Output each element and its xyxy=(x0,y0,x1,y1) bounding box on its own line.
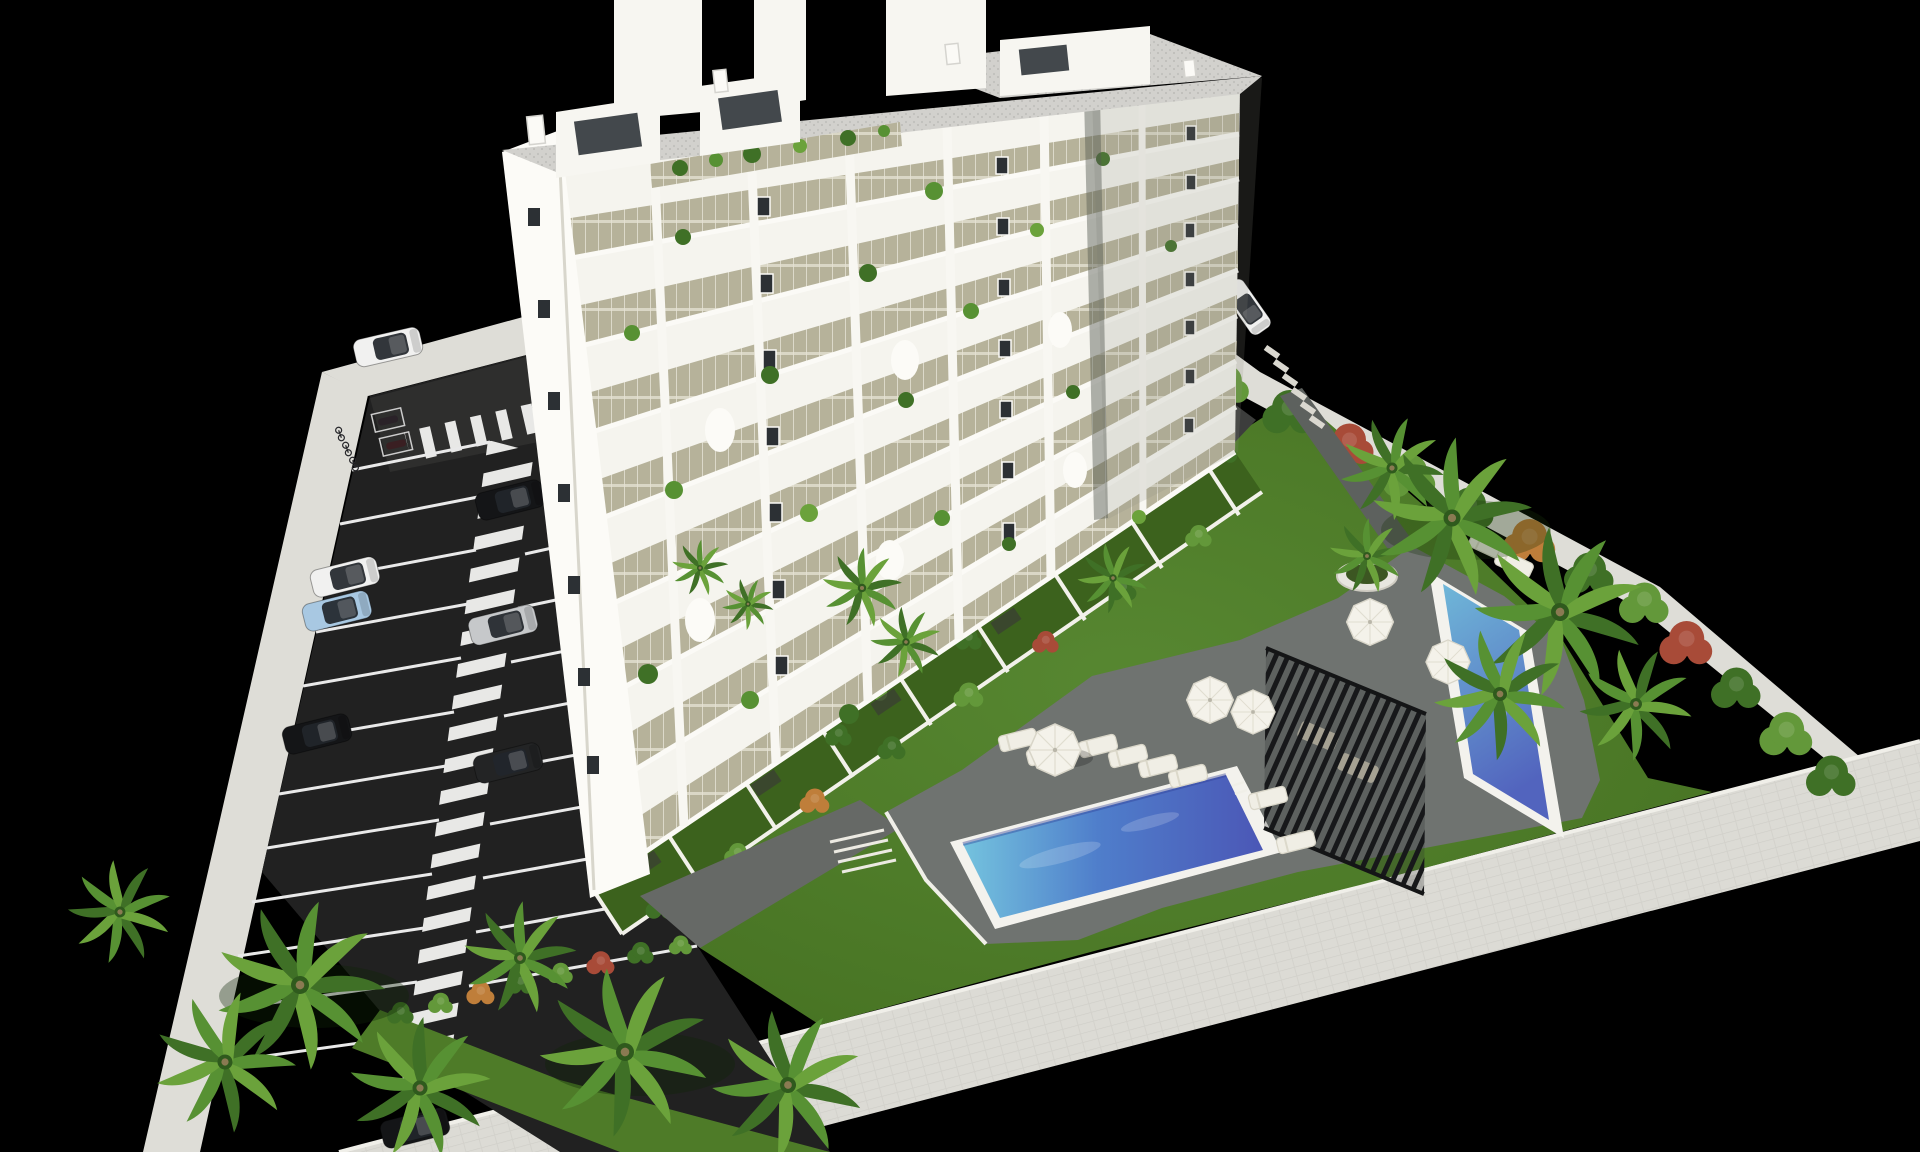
umbrella-icon xyxy=(1029,724,1081,776)
render-canvas xyxy=(0,0,1920,1152)
umbrella-icon xyxy=(1231,690,1275,734)
umbrella-icon xyxy=(1187,677,1234,724)
aerial-render xyxy=(0,0,1920,1152)
stair-bulkhead xyxy=(886,0,986,96)
umbrella-icon xyxy=(1347,599,1394,646)
